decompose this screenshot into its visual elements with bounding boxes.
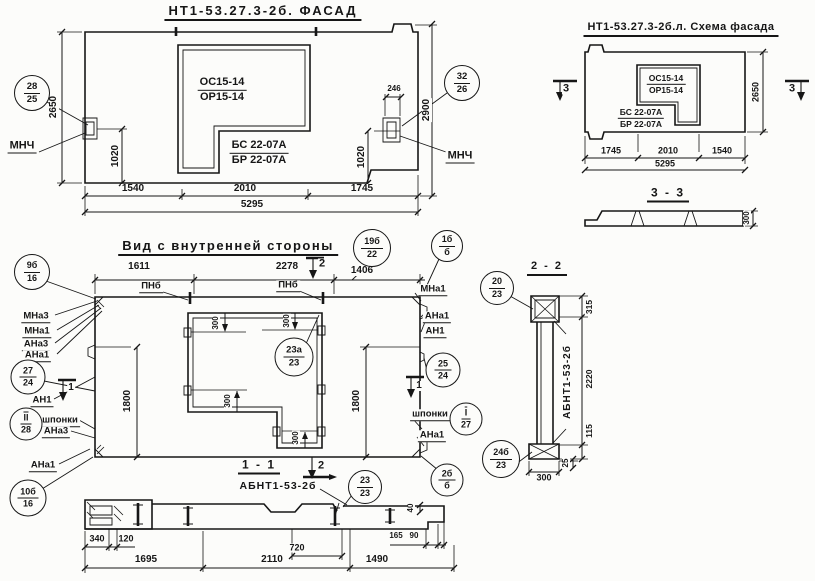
callout-ana3b-left: АНа3 (42, 426, 70, 438)
panel-mark-top: БС 22-07А (230, 139, 289, 154)
balloon-top: 1б (439, 235, 456, 246)
dim-s11-90: 90 (409, 532, 420, 540)
balloon-bottom: 23 (490, 289, 504, 299)
section11-panel-label: АБНТ1-53-2б (239, 481, 318, 492)
callout-mna1-left: МНа1 (22, 326, 51, 338)
balloon-top: 32 (454, 72, 471, 84)
dim-section22-2220: 2220 (585, 369, 594, 390)
position-balloon-10b-16: 10б 16 (10, 480, 47, 517)
balloon-bottom: 27 (459, 420, 473, 430)
balloon-top: 23 (357, 476, 373, 487)
dim-facade-1540: 1540 (121, 184, 145, 194)
dim-key-300-bm: 300 (292, 430, 300, 445)
balloon-bottom: 23 (358, 488, 372, 498)
dim-schema-total: 5295 (654, 160, 676, 169)
schema-title: НТ1-53.27.3-2б.л. Схема фасада (583, 21, 778, 37)
inner-view-title: Вид с внутренней стороны (118, 238, 338, 256)
position-balloon-19b-22: 19б 22 (353, 229, 391, 267)
dim-facade-hook-right: 1020 (357, 145, 367, 169)
dim-key-300-ml: 300 (224, 393, 232, 408)
position-balloon-25-24: 25 24 (426, 353, 461, 388)
dim-inner-1406: 1406 (350, 266, 374, 276)
balloon-top: I (462, 408, 471, 419)
facade-title: НТ1-53.27.3-2б. ФАСАД (164, 3, 361, 21)
section-marker-3-right: 3 (788, 84, 796, 95)
position-balloon-20-23: 20 23 (480, 271, 514, 305)
balloon-top: 23а (283, 346, 305, 358)
dim-s11-2110: 2110 (260, 555, 284, 565)
balloon-bottom: 26 (455, 84, 470, 95)
dim-s11-120: 120 (117, 535, 134, 544)
callout-shponki-right: шпонки (410, 409, 450, 421)
dim-key-300-tr: 300 (283, 313, 291, 328)
dim-facade-total: 5295 (240, 200, 264, 210)
dim-inner-1800-right: 1800 (352, 389, 362, 413)
dim-s11-1695: 1695 (134, 555, 158, 565)
opening-mark-top: ОС15-14 (198, 76, 247, 91)
schema-opening-mark: ОС15-14 ОР15-14 (647, 73, 686, 95)
callout-ana1-right: АНа1 (423, 311, 451, 323)
balloon-top: 10б (17, 487, 39, 498)
dim-facade-hook-left: 1020 (111, 144, 121, 168)
dim-schema-1540: 1540 (711, 147, 733, 156)
position-balloon-i-27: I 27 (450, 403, 483, 436)
dim-s11-165: 165 (388, 532, 403, 540)
balloon-bottom: 25 (25, 94, 40, 105)
position-balloon-27-24: 27 24 (11, 360, 46, 395)
facade-panel-mark: БС 22-07А БР 22-07А (230, 139, 289, 167)
dim-section33-thickness: 300 (743, 210, 751, 225)
position-balloon-1b-b: 1б б (431, 230, 463, 262)
balloon-top: 25 (435, 359, 451, 370)
dim-facade-2010: 2010 (233, 184, 257, 194)
position-balloon-24b-23: 24б 23 (482, 440, 520, 478)
dim-facade-height-right: 2900 (422, 98, 432, 122)
dim-facade-1745: 1745 (350, 184, 374, 194)
panel-mark-bottom: БР 22-07А (620, 119, 662, 129)
dim-schema-1745: 1745 (600, 147, 622, 156)
callout-mna3-left: МНа3 (21, 311, 50, 323)
dim-s11-40: 40 (407, 503, 415, 514)
dim-schema-2010: 2010 (657, 147, 679, 156)
dim-facade-height-left: 2650 (49, 95, 59, 119)
opening-mark-bottom: ОР15-14 (649, 85, 683, 95)
balloon-bottom: 24 (21, 378, 35, 388)
section-2-2-title: 2 - 2 (527, 260, 567, 276)
balloon-top: 9б (24, 261, 41, 272)
section-1-1-title: 1 - 1 (238, 458, 280, 475)
dim-inner-2278: 2278 (275, 262, 299, 272)
dim-inner-1611: 1611 (127, 262, 151, 272)
schema-panel-mark: БС 22-07А БР 22-07А (618, 107, 664, 129)
section-marker-3-left: 3 (562, 84, 570, 95)
dim-s11-720: 720 (288, 544, 305, 553)
dim-schema-height: 2650 (752, 81, 761, 103)
callout-an1-left: АН1 (30, 395, 53, 407)
section-marker-1-right: 1 (415, 381, 423, 391)
balloon-top: 27 (20, 366, 36, 377)
position-balloon-ii-28: II 28 (10, 408, 43, 441)
balloon-bottom: 22 (365, 249, 379, 259)
balloon-bottom: 23 (287, 358, 302, 369)
dim-s11-340: 340 (88, 535, 105, 544)
facade-opening-mark: ОС15-14 ОР15-14 (198, 76, 247, 104)
balloon-bottom: 24 (436, 371, 450, 381)
panel-mark-bottom: БР 22-07А (232, 154, 286, 166)
drawing-linework (0, 0, 815, 581)
opening-mark-bottom: ОР15-14 (200, 91, 244, 103)
balloon-bottom: 16 (25, 273, 39, 283)
callout-ana1b-right: АНа1 (418, 430, 446, 442)
balloon-top: 24б (490, 448, 512, 459)
section-marker-1-left: 1 (67, 383, 75, 393)
position-balloon-9b-16: 9б 16 (14, 254, 50, 290)
balloon-bottom: 28 (19, 425, 33, 435)
section-marker-2-top: 2 (318, 259, 326, 270)
anchor-label-mnch-left: МНЧ (8, 141, 37, 154)
balloon-bottom: б (442, 247, 452, 257)
position-balloon-23-23: 23 23 (348, 470, 382, 504)
joint-label-pnb-right: ПНб (276, 280, 300, 292)
position-balloon-2b-b: 2б б (431, 464, 464, 497)
dim-section22-315: 315 (585, 299, 594, 315)
panel-mark-top: БС 22-07А (618, 107, 664, 119)
balloon-top: 2б (439, 469, 456, 480)
section22-panel-label: АБНТ1-53-2б (563, 344, 573, 420)
balloon-bottom: б (442, 481, 452, 491)
balloon-top: 19б (361, 237, 383, 248)
dim-section22-25: 25 (562, 458, 570, 469)
callout-ana1b-left: АНа1 (29, 460, 57, 472)
opening-mark-top: ОС15-14 (647, 73, 686, 85)
balloon-bottom: 23 (494, 460, 508, 470)
dim-key-300-tl: 300 (212, 315, 220, 330)
dim-s11-1490: 1490 (365, 555, 389, 565)
dim-section22-300: 300 (535, 474, 552, 483)
dim-inner-1800-left: 1800 (123, 389, 133, 413)
dim-facade-notch: 246 (386, 85, 401, 93)
section-marker-2-bottom: 2 (317, 461, 325, 472)
callout-an1-right: АН1 (423, 326, 446, 338)
drawing-sheet: НТ1-53.27.3-2б. ФАСАД ОС15-14 ОР15-14 БС… (0, 0, 815, 581)
balloon-top: 20 (489, 277, 505, 288)
balloon-bottom: 16 (21, 499, 35, 509)
position-balloon-28-25: 28 25 (14, 75, 50, 111)
joint-label-pnb-left: ПНб (139, 281, 163, 293)
balloon-top: II (20, 413, 31, 424)
callout-mna1-right: МНа1 (418, 284, 447, 296)
balloon-top: 28 (24, 82, 41, 94)
section-3-3-title: 3 - 3 (647, 186, 689, 203)
position-balloon-32-26: 32 26 (444, 65, 480, 101)
anchor-label-mnch-right: МНЧ (446, 151, 475, 164)
dim-section22-115: 115 (585, 423, 594, 439)
position-balloon-23a-23: 23а 23 (275, 338, 314, 377)
